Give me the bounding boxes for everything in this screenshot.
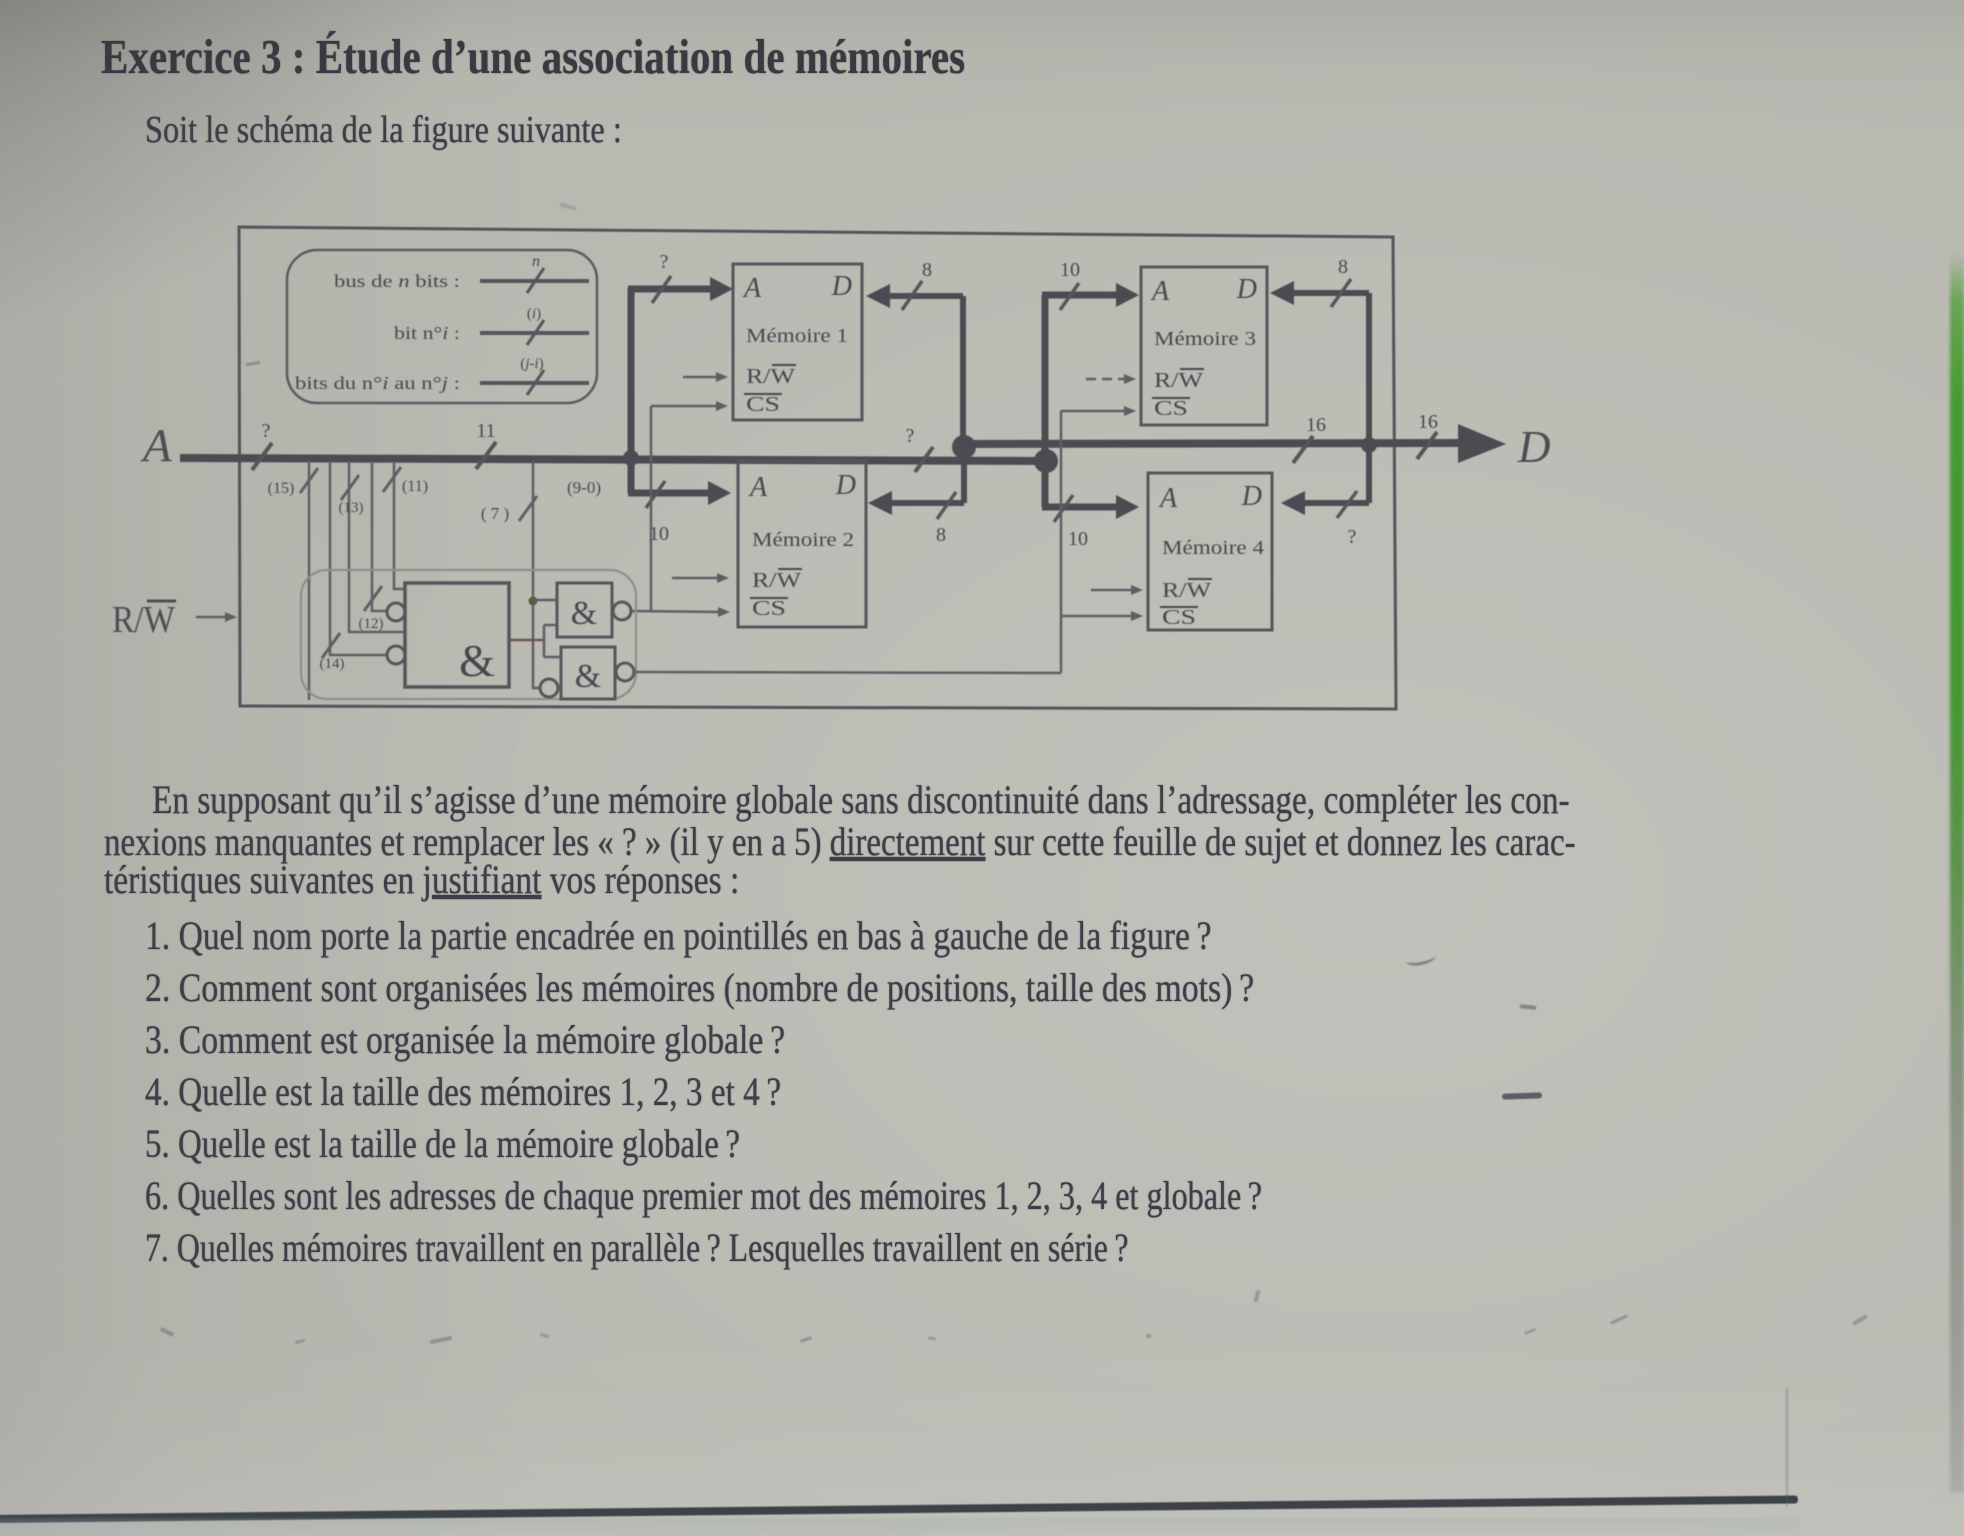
svg-text:10: 10 <box>1068 528 1088 550</box>
svg-text:&: & <box>575 658 601 695</box>
svg-text:(j-i): (j-i) <box>520 356 543 372</box>
svg-text:n: n <box>532 253 540 270</box>
svg-text:CS: CS <box>752 596 786 620</box>
svg-text:8: 8 <box>922 259 932 281</box>
svg-text:R/W: R/W <box>1154 368 1203 392</box>
svg-text:R/W: R/W <box>112 599 175 641</box>
svg-text:&: & <box>571 595 597 632</box>
svg-text:?: ? <box>660 251 669 273</box>
svg-text:Mémoire 2: Mémoire 2 <box>752 529 854 551</box>
svg-text:( 7 ): ( 7 ) <box>481 504 509 523</box>
svg-text:R/W: R/W <box>752 568 801 592</box>
svg-text:8: 8 <box>936 524 946 546</box>
svg-text:Mémoire 3: Mémoire 3 <box>1154 328 1256 350</box>
svg-text:(11): (11) <box>402 478 428 495</box>
svg-text:(9-0): (9-0) <box>567 478 601 497</box>
svg-text:A: A <box>140 420 172 472</box>
svg-text:16: 16 <box>1418 411 1438 433</box>
svg-text:?: ? <box>1348 526 1357 548</box>
svg-text:?: ? <box>262 420 271 442</box>
svg-text:D: D <box>1236 274 1257 305</box>
svg-text:(15): (15) <box>268 480 295 497</box>
svg-text:CS: CS <box>1154 396 1188 420</box>
svg-text:CS: CS <box>746 392 780 416</box>
svg-text:D: D <box>831 271 852 302</box>
svg-text:D: D <box>835 470 856 501</box>
svg-text:(12): (12) <box>359 616 384 632</box>
svg-text:11: 11 <box>476 420 495 442</box>
svg-text:D: D <box>1241 481 1262 512</box>
svg-text:(13): (13) <box>339 500 364 516</box>
svg-text:A: A <box>1158 483 1178 514</box>
svg-text:bit n°i :: bit n°i : <box>394 323 460 343</box>
svg-text:Mémoire 4: Mémoire 4 <box>1162 537 1264 559</box>
svg-text:8: 8 <box>1338 256 1348 278</box>
svg-text:16: 16 <box>1306 414 1326 436</box>
svg-text:A: A <box>748 472 768 503</box>
svg-text:CS: CS <box>1162 605 1196 629</box>
svg-text:R/W: R/W <box>1162 578 1211 602</box>
svg-text:A: A <box>1150 276 1170 307</box>
svg-text:10: 10 <box>1060 259 1080 281</box>
svg-text:R/W: R/W <box>746 364 795 388</box>
svg-text:(i): (i) <box>527 306 541 322</box>
svg-text:bits du n°i au n°j :: bits du n°i au n°j : <box>295 373 460 393</box>
svg-text:Mémoire 1: Mémoire 1 <box>746 325 848 347</box>
svg-text:(14): (14) <box>320 656 345 672</box>
svg-text:D: D <box>1517 422 1551 472</box>
svg-text:A: A <box>742 273 762 304</box>
svg-text:&: & <box>459 635 495 686</box>
svg-text:bus de n bits :: bus de n bits : <box>334 271 460 291</box>
svg-text:?: ? <box>906 425 915 447</box>
